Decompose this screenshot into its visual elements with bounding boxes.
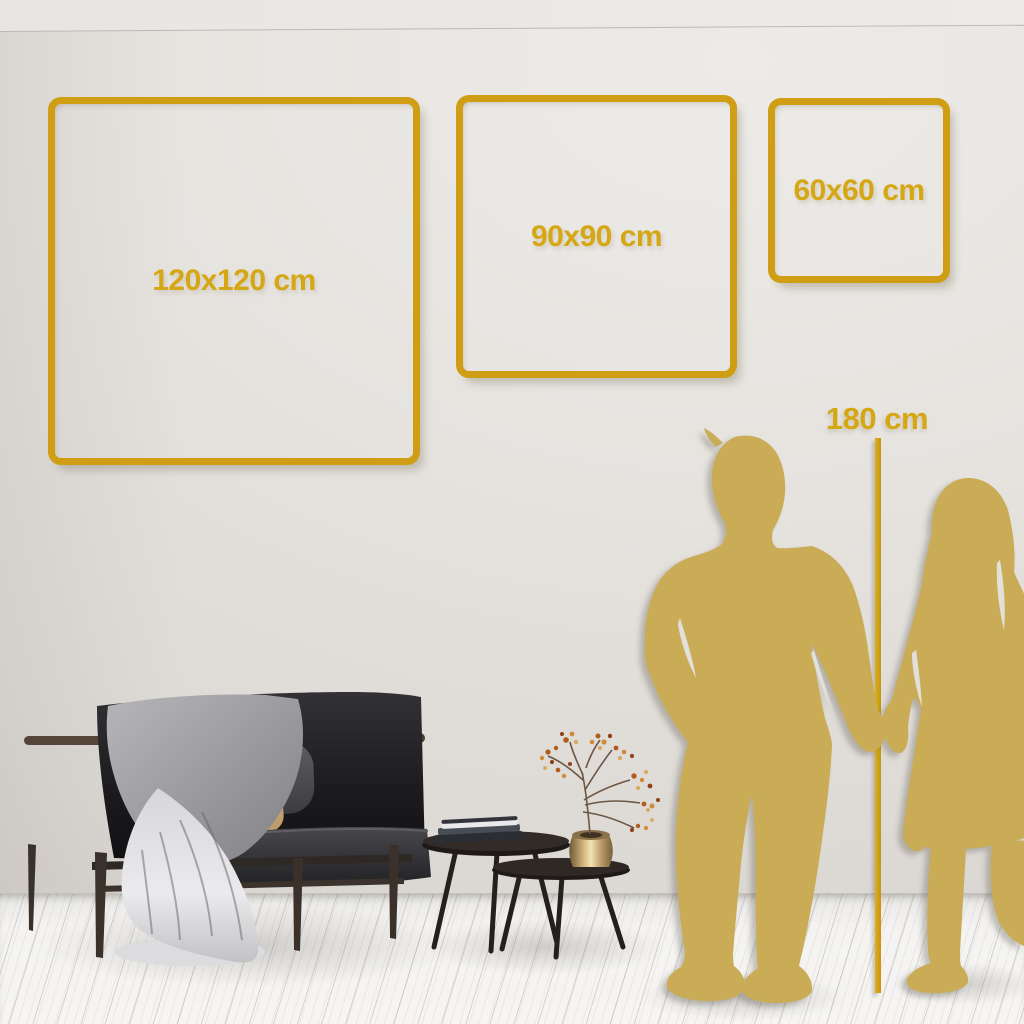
man-hair-tuft [704,428,723,447]
couple-silhouette-illustration [0,0,1024,1024]
woman-left-leg [907,845,968,993]
size-guide-scene: 120x120 cm 90x90 cm 60x60 cm 180 cm [0,0,1024,1024]
man-silhouette [645,436,887,1003]
couple-silhouette [645,428,1024,1003]
woman-right-leg [991,840,1024,949]
woman-silhouette [883,478,1024,851]
